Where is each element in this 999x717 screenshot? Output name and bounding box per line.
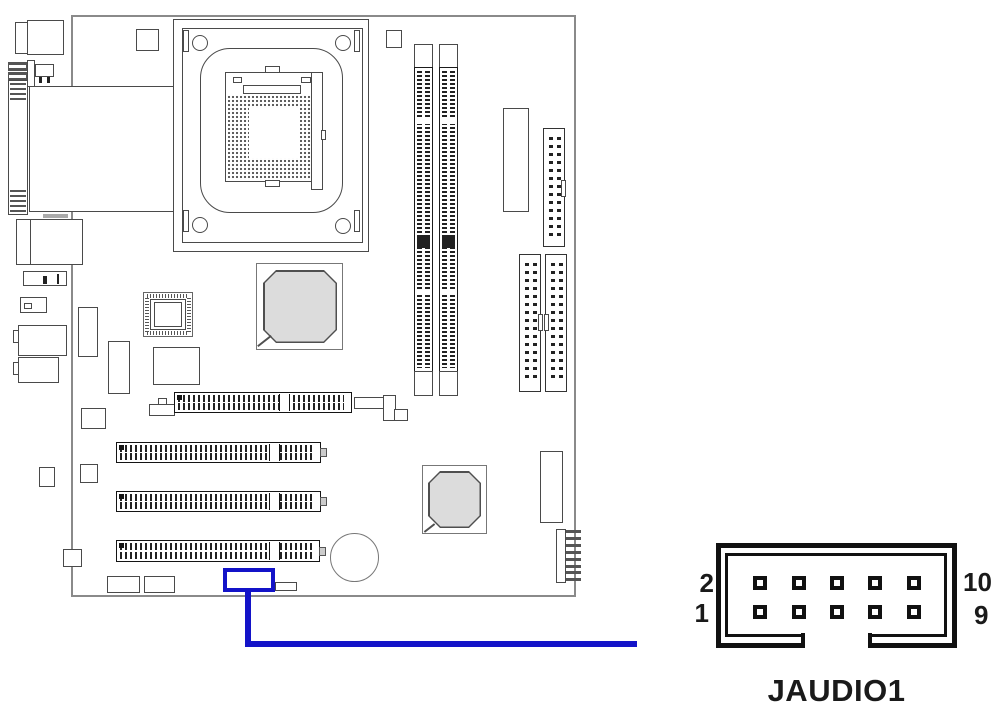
jaudio1-highlight-box [223,568,275,592]
cpu-tab-bottom [265,180,280,187]
jaudio1-pin [907,605,921,619]
jaudio1-inner-top [725,553,947,556]
north-bridge-chip [263,270,337,343]
mount-square-e [80,464,98,483]
lan-indicator-box [23,271,67,286]
cpu-hole-tl [192,35,208,51]
front-panel-pin [566,530,581,533]
floppy-key-tab [561,180,566,197]
bottom-rect-1 [107,576,140,593]
cpu-frame-tab-tr [354,30,360,52]
leader-line-horizontal [245,641,637,647]
jaudio1-pin [830,576,844,590]
dimm2-tab-bottom [439,371,458,396]
mount-square-top-left [136,29,159,51]
cpu-hole-tr [335,35,351,51]
front-panel-header-pins [566,530,582,583]
jaudio1-pin [753,605,767,619]
cpu-lever-nub [321,130,326,140]
cpu-frame-tab-br [354,210,360,232]
cpu-tab-top [265,66,280,73]
pci-slot-3 [116,540,320,562]
component-rect-b [108,341,130,394]
cpu-notch-right [301,77,311,83]
pci-slot-1 [116,442,321,463]
south-bridge-chip [428,471,481,528]
pin-label-10: 10 [963,569,999,595]
io-pin-a [39,77,42,83]
front-panel-pin [566,537,581,540]
io-bracket-strip [8,80,28,215]
cpu-die-area [249,108,300,158]
dimm-slot-1 [414,67,433,372]
jaudio1-inner-right [944,553,947,637]
usb-lan-block [16,219,83,265]
front-panel-pin [566,565,581,568]
jaudio1-outline-top [716,543,957,548]
ide2-key-tab [544,314,549,331]
io-small-box [35,64,54,77]
leader-line-vertical [245,590,251,646]
agp-latch-foot [394,409,408,421]
jaudio1-inner-bottom-right [868,634,947,637]
pin-label-9: 9 [974,602,999,628]
cpu-hole-br [335,218,351,234]
io-post [27,60,35,87]
audio-jack-1 [18,325,67,356]
jaudio1-outline-left [716,543,721,648]
jaudio1-pin [753,576,767,590]
front-panel-pin [566,551,581,554]
jaudio1-inner-left [725,553,728,637]
jaudio1-outline-bottom-right [868,643,957,648]
front-panel-pin [566,544,581,547]
mount-square-top-mid [386,30,402,48]
audio-jack-2 [18,357,59,383]
jaudio1-pin [792,576,806,590]
bottom-rect-2 [144,576,175,593]
io-gray-bar [43,214,68,218]
jaudio1-outline-bottom-left [716,643,805,648]
cmos-battery [330,533,379,582]
agp-step-bar [149,404,175,416]
atx-power-connector [503,108,529,212]
cpu-frame-tab-tl [183,30,189,52]
dimm2-tab-top [439,44,458,68]
io-comb-1 [8,62,27,71]
agp-latch-bar [354,397,384,409]
pin-label-1: 1 [681,600,709,626]
jaudio1-pin [792,605,806,619]
ide1-key-tab [538,314,543,331]
jaudio1-inner-bottom-left [725,634,805,637]
connector-caption: JAUDIO1 [716,673,957,709]
super-io-chip [143,292,193,337]
cpu-hole-bl [192,217,208,233]
cpu-top-bar [243,85,301,94]
dimm-slot-2 [439,67,458,372]
pin-label-2: 2 [686,570,714,596]
pci2-end-tab [320,497,327,506]
front-panel-pin [566,571,581,574]
front-panel-header-base [556,529,566,583]
pci-slot-2 [116,491,321,512]
jaudio1-pin [868,576,882,590]
component-box-e [153,347,200,385]
component-rect-a [78,307,98,357]
jaudio1-pin [830,605,844,619]
pci1-end-tab [320,448,327,457]
jaudio1-adjacent-jumper [275,582,297,591]
front-panel-pin [566,578,581,581]
front-panel-pin [566,558,581,561]
ps2-port [27,20,64,55]
jaudio1-pin [907,576,921,590]
jaudio1-pin [868,605,882,619]
small-port [20,297,47,313]
dimm1-tab-top [414,44,433,68]
pci3-end-tab [319,547,326,556]
mount-square-d [39,467,55,487]
cpu-frame-tab-bl [183,210,189,232]
component-square-c [81,408,106,429]
io-pin-b [47,77,50,83]
component-rect-right [540,451,563,523]
mount-square-f [63,549,82,567]
agp-slot [174,392,352,413]
dimm1-tab-bottom [414,371,433,396]
figure-canvas: 2 1 10 9 JAUDIO1 [0,0,999,717]
cpu-notch-left [233,77,242,83]
jaudio1-outline-right [952,543,957,648]
